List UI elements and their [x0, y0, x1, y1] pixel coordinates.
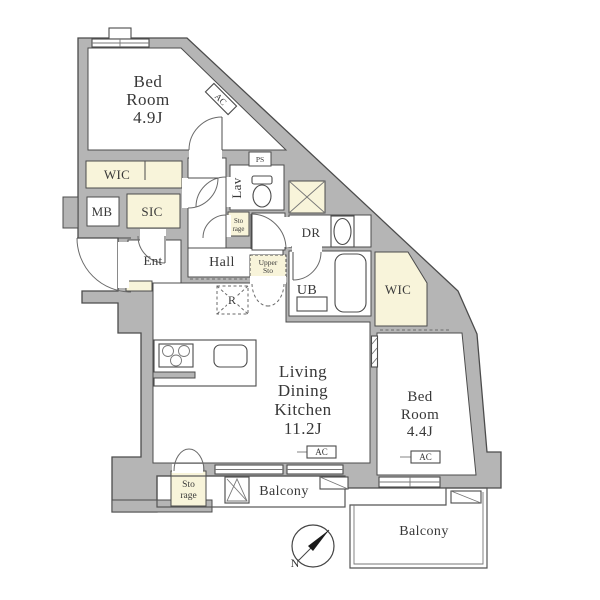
svg-text:rage: rage: [180, 491, 196, 501]
svg-text:4.4J: 4.4J: [407, 424, 433, 440]
balcony-partition-left: [320, 477, 348, 489]
svg-text:Bed: Bed: [134, 72, 163, 91]
label-wic-right: WIC: [385, 282, 411, 297]
window-bedroom-right: [379, 477, 440, 487]
label-storage-ldk: Sto rage: [180, 480, 196, 501]
pocket-door-bedroom-right: [372, 336, 378, 367]
kitchen-counter: [153, 340, 256, 386]
washer-icon: [331, 216, 354, 247]
window-bedroom-top: [92, 39, 149, 47]
svg-text:Room: Room: [401, 407, 439, 423]
wall-bump-meterbox: [63, 197, 78, 228]
evacuation-hatch-icon: [225, 477, 249, 503]
label-sic: SIC: [141, 204, 162, 219]
compass-icon: N: [291, 525, 334, 570]
entrance-step: [126, 281, 152, 291]
label-lav: Lav: [229, 177, 244, 198]
svg-text:Sto: Sto: [263, 266, 273, 275]
balcony-partition-right: [451, 491, 481, 503]
corridor-floor: [188, 158, 226, 255]
label-ub: UB: [297, 283, 317, 298]
counter-return: [153, 372, 195, 378]
svg-text:rage: rage: [233, 226, 245, 233]
floorplan-page: R AC AC: [0, 0, 600, 600]
svg-text:AC: AC: [315, 447, 328, 457]
label-wic-left: WIC: [104, 167, 130, 182]
toilet-icon: [252, 176, 272, 207]
svg-text:11.2J: 11.2J: [284, 419, 322, 438]
fridge-label: R: [228, 293, 236, 307]
pillar-top-box: [109, 28, 131, 39]
window-ldk-right: [287, 465, 343, 474]
label-ps: PS: [256, 155, 264, 164]
label-dr: DR: [302, 225, 321, 240]
svg-text:Kitchen: Kitchen: [274, 400, 331, 419]
svg-text:AC: AC: [419, 452, 432, 462]
label-ent: Ent: [144, 253, 163, 268]
label-storage-hall: Sto rage: [233, 218, 245, 233]
svg-text:4.9J: 4.9J: [133, 108, 163, 127]
sink-icon: [214, 345, 247, 367]
floorplan-drawing: R AC AC: [0, 0, 600, 600]
room-bedroom-top-floor: [88, 48, 286, 150]
window-ldk-left: [215, 465, 283, 474]
svg-text:Sto: Sto: [182, 480, 195, 490]
vanity-icon: [297, 297, 327, 311]
bathtub-icon: [335, 254, 366, 312]
svg-text:Room: Room: [126, 90, 170, 109]
svg-text:Bed: Bed: [407, 389, 432, 405]
svg-text:Sto: Sto: [234, 218, 244, 225]
svg-text:Living: Living: [279, 362, 327, 381]
label-hall: Hall: [209, 255, 235, 270]
label-balcony-right: Balcony: [399, 524, 448, 539]
label-mb: MB: [92, 204, 113, 219]
wic-left-floor: [86, 161, 182, 188]
label-balcony-left: Balcony: [259, 484, 308, 499]
north-label: N: [291, 556, 300, 570]
svg-text:Dining: Dining: [278, 381, 328, 400]
